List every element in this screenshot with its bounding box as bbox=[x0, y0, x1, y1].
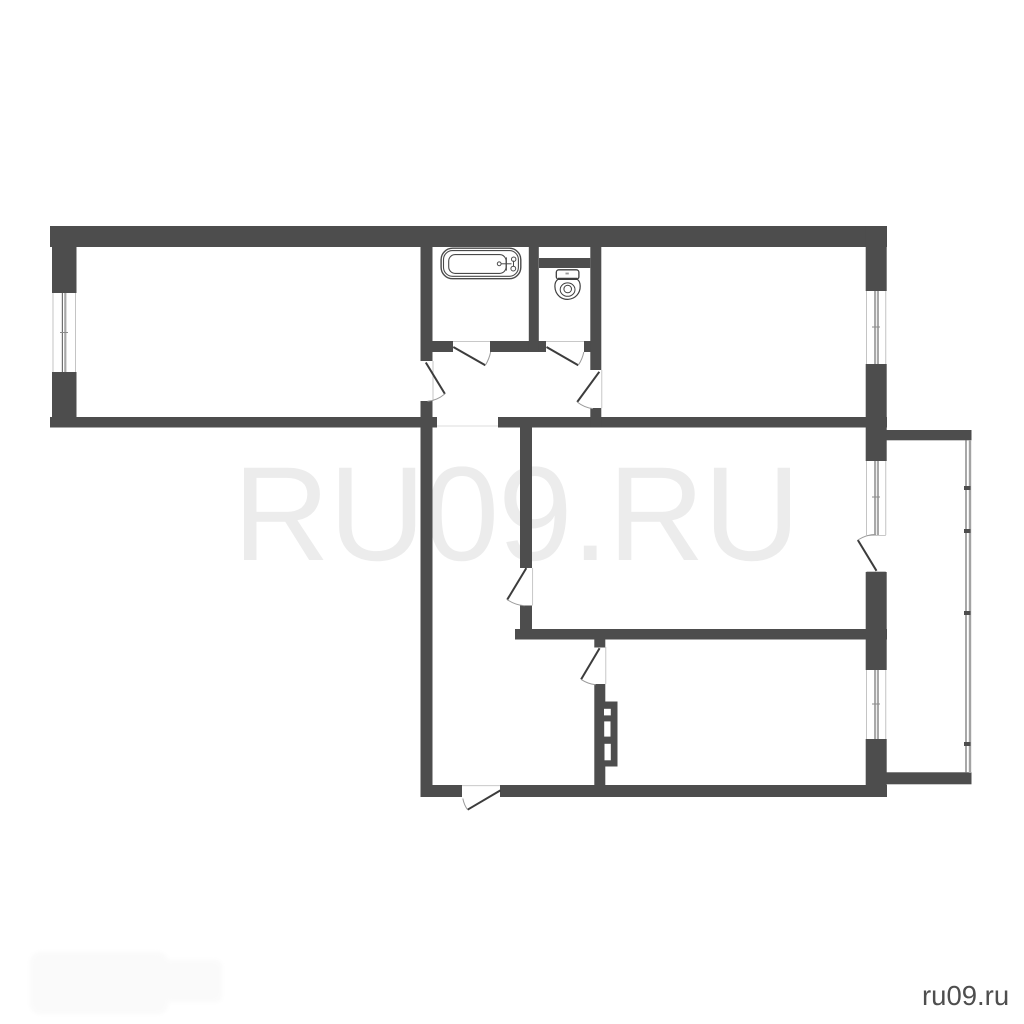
svg-text:RU09.RU: RU09.RU bbox=[233, 440, 799, 589]
svg-text:ru09.ru: ru09.ru bbox=[922, 980, 1009, 1011]
